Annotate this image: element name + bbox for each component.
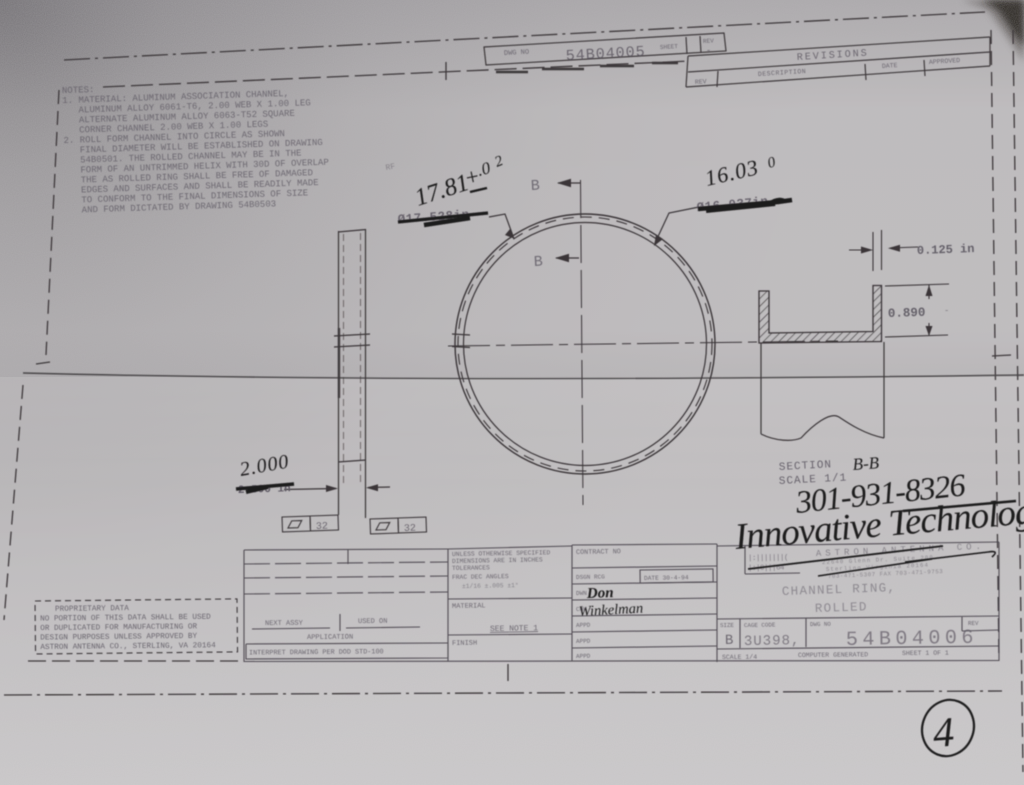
svg-text:Winkelman: Winkelman [578, 601, 643, 620]
svg-text:B: B [530, 178, 540, 195]
svg-text:FINISH: FINISH [452, 640, 477, 648]
svg-text:DESIGN PURPOSES UNLESS APPROVE: DESIGN PURPOSES UNLESS APPROVED BY [40, 633, 197, 643]
svg-text:DWN: DWN [576, 590, 587, 597]
svg-text:54B04006: 54B04006 [846, 627, 978, 652]
svg-text:NEXT ASSY: NEXT ASSY [265, 620, 304, 628]
svg-text:OR DUPLICATED FOR MANUFACTURIN: OR DUPLICATED FOR MANUFACTURING OR [40, 623, 197, 633]
svg-text:APPD: APPD [576, 653, 591, 660]
svg-text:±1/16 ±.005 ±1°: ±1/16 ±.005 ±1° [462, 581, 519, 590]
svg-text:CONTRACT NO: CONTRACT NO [576, 548, 621, 557]
svg-text:4: 4 [931, 710, 955, 757]
svg-text:DWG NO: DWG NO [504, 49, 530, 58]
svg-text:3U398,: 3U398, [744, 633, 801, 650]
svg-text:0.890: 0.890 [888, 306, 926, 321]
svg-text:DSGN RCG: DSGN RCG [576, 573, 605, 581]
svg-text:MATERIAL: MATERIAL [452, 602, 486, 611]
svg-text:32: 32 [404, 524, 416, 535]
svg-text:SHEET: SHEET [660, 43, 679, 51]
svg-text:APPD: APPD [576, 638, 591, 645]
svg-text:SIZE: SIZE [720, 622, 735, 629]
svg-text:SCALE 1/4: SCALE 1/4 [722, 654, 757, 661]
svg-text:Don: Don [586, 585, 614, 602]
svg-text:-: - [944, 306, 950, 316]
svg-text:0.125 in: 0.125 in [917, 242, 975, 258]
svg-text:COMPUTER GENERATED: COMPUTER GENERATED [798, 651, 868, 659]
svg-text:REV: REV [703, 37, 715, 45]
svg-text:SEE NOTE 1: SEE NOTE 1 [490, 624, 538, 634]
svg-text:TOLERANCES: TOLERANCES [452, 564, 490, 572]
svg-text:APPLICATION: APPLICATION [307, 634, 353, 642]
svg-text:REV: REV [968, 620, 979, 627]
svg-text:B: B [725, 633, 734, 649]
svg-text:SHEET 1 OF 1: SHEET 1 OF 1 [902, 650, 949, 657]
svg-text:INTERPRET DRAWING PER DOD STD-: INTERPRET DRAWING PER DOD STD-100 [249, 648, 384, 657]
svg-text:CAGE CODE: CAGE CODE [744, 621, 776, 629]
svg-text:ROLLED: ROLLED [815, 600, 868, 616]
svg-text:DATE 30-4-94: DATE 30-4-94 [644, 574, 689, 582]
svg-text:USED ON: USED ON [358, 618, 387, 626]
svg-text:DWG NO: DWG NO [810, 621, 832, 628]
svg-text:REV: REV [695, 78, 707, 86]
svg-text:B: B [533, 254, 543, 271]
svg-text:DATE: DATE [882, 62, 898, 70]
svg-text:32: 32 [316, 522, 328, 533]
svg-text:APPD: APPD [576, 622, 591, 629]
svg-text:FRAC DEC ANGLES: FRAC DEC ANGLES [452, 573, 509, 581]
svg-text:RF: RF [385, 162, 396, 173]
svg-text:PROPRIETARY DATA: PROPRIETARY DATA [55, 605, 129, 614]
svg-text:B-B: B-B [852, 453, 880, 474]
